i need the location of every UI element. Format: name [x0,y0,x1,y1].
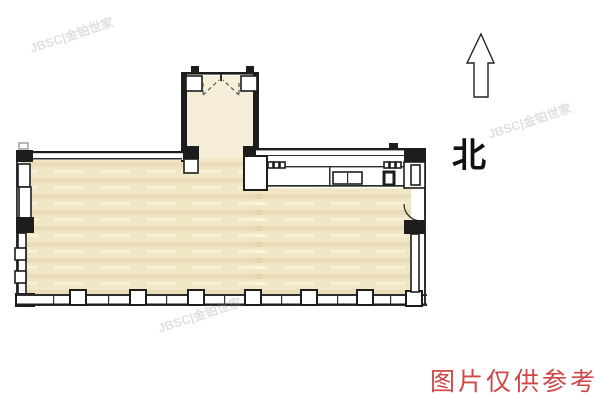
disclaimer-text: 图片仅供参考 [430,362,598,398]
service-rooms [244,156,405,190]
door-jamb-icon [384,172,394,185]
floorplan-drawing [0,0,600,400]
floorplan-reference-image: 北 图片仅供参考 JBSC|金铂世家 JBSC|金铂世家 JBSC|金铂世家 [0,0,600,400]
north-arrow-icon [467,34,494,97]
counter-fixture-icon [333,172,362,184]
north-label: 北 [452,128,487,177]
